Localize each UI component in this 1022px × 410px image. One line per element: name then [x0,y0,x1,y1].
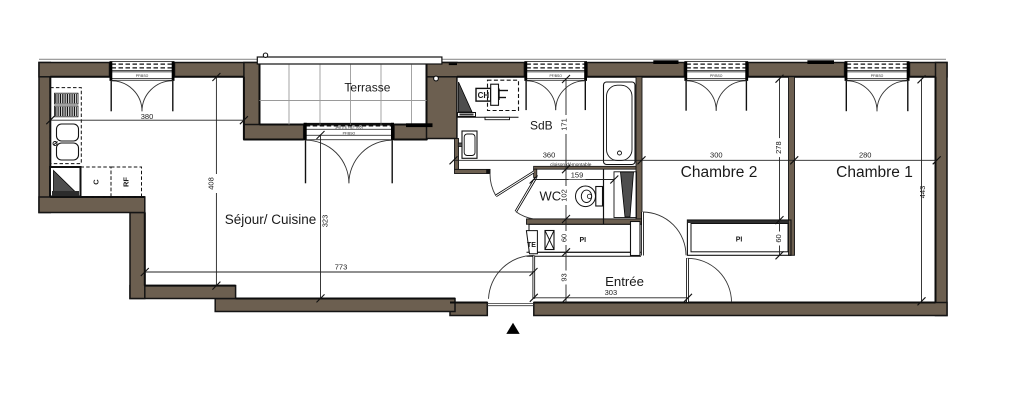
svg-text:278: 278 [774,141,783,154]
svg-text:323: 323 [321,215,330,228]
svg-text:PF/BSO: PF/BSO [549,74,562,78]
svg-text:303: 303 [605,288,618,297]
svg-text:60: 60 [559,234,568,242]
svg-text:443: 443 [918,186,927,199]
svg-text:773: 773 [335,262,348,271]
svg-text:PF/BSO: PF/BSO [136,74,149,78]
svg-text:60: 60 [774,234,783,242]
svg-text:RF: RF [122,177,131,187]
svg-text:360: 360 [543,151,556,160]
svg-text:93: 93 [559,273,568,281]
svg-text:PF/BSO: PF/BSO [871,74,884,78]
svg-text:WC: WC [539,188,561,203]
svg-text:Entrée: Entrée [605,274,644,289]
svg-text:cloison démontable: cloison démontable [550,162,592,168]
svg-text:C: C [92,179,101,185]
svg-text:380: 380 [141,112,154,121]
svg-text:408: 408 [207,177,216,190]
svg-text:Terrasse: Terrasse [344,81,390,95]
svg-text:TE: TE [527,242,536,249]
svg-text:171: 171 [559,118,568,131]
svg-text:280: 280 [859,151,872,160]
svg-text:PF/BSO: PF/BSO [343,131,356,135]
svg-text:Chambre 1: Chambre 1 [836,164,913,181]
svg-text:PF/BSO: PF/BSO [710,74,723,78]
svg-text:PI: PI [579,237,586,244]
svg-text:PI: PI [736,237,743,244]
svg-text:159: 159 [571,170,584,179]
svg-text:348 (TE HET 005): 348 (TE HET 005) [335,126,362,130]
svg-text:Chambre 2: Chambre 2 [681,164,758,181]
svg-text:SdB: SdB [530,118,553,132]
svg-text:Séjour/ Cuisine: Séjour/ Cuisine [225,212,317,227]
svg-text:300: 300 [710,151,723,160]
